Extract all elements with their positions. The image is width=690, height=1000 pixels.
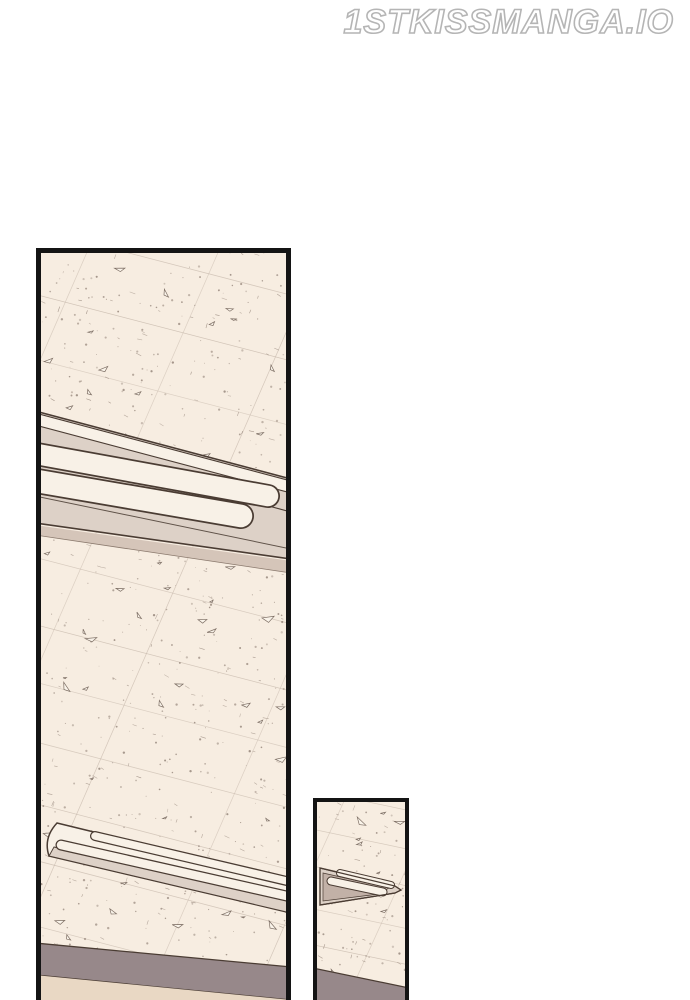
manga-panel-small bbox=[313, 798, 409, 1000]
ceiling-scene-small bbox=[317, 802, 405, 1000]
site-watermark: 1STKISSMANGA.IO bbox=[300, 0, 680, 48]
site-watermark-text: 1STKISSMANGA.IO bbox=[344, 3, 674, 41]
site-watermark-art: 1STKISSMANGA.IO bbox=[300, 0, 680, 48]
manga-panel-tall bbox=[36, 248, 291, 1000]
ceiling-scene-tall bbox=[41, 253, 286, 1000]
manga-reader-page: { "site_watermark": { "text": "1STKISSMA… bbox=[0, 0, 690, 1000]
